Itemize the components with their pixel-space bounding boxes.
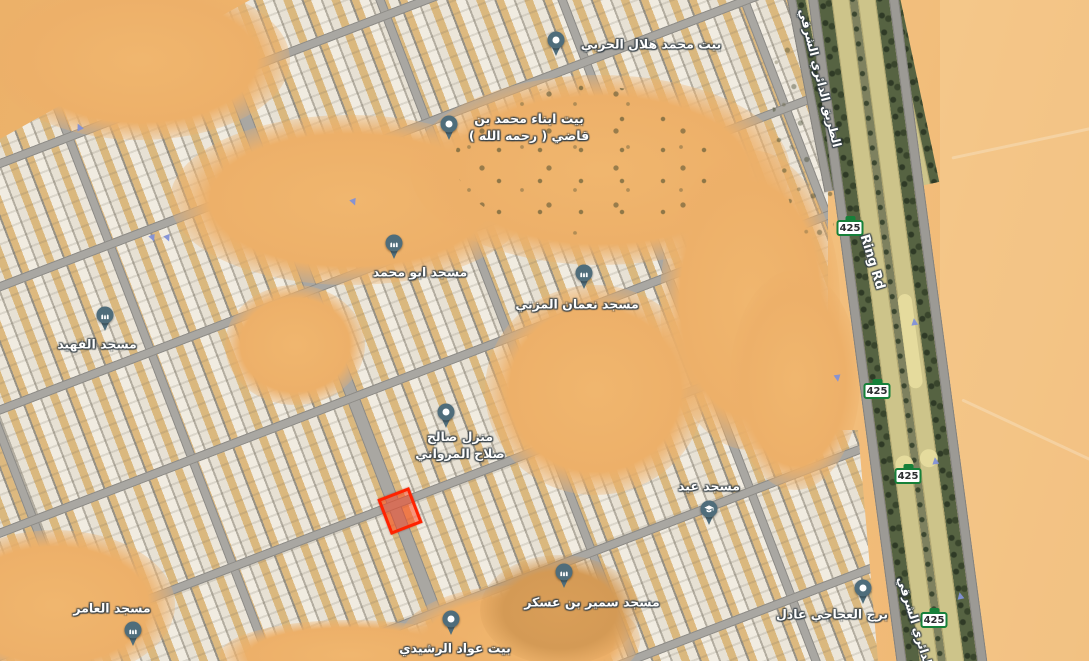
pin-label-mosque-eid[interactable]: مسجد عيد [678, 479, 740, 496]
traffic-direction-arrow: ▲ [956, 591, 965, 601]
traffic-direction-arrow: ▲ [931, 457, 939, 467]
pin-mosque-alamer[interactable] [125, 622, 142, 639]
pin-house-awad-alrashidi[interactable] [443, 611, 460, 628]
pin-label-line: صلاح المرواني [415, 446, 504, 463]
pin-mosque-alfuhaid[interactable] [97, 307, 114, 324]
satellite-map[interactable]: ▲▲▲▲▲▲▲▲425425425425الطريق الدائري الشرق… [0, 0, 1089, 661]
pin-label-line: برج العجاجي عادل [776, 607, 888, 624]
dot-icon [446, 121, 453, 128]
pin-mosque-eid[interactable] [701, 501, 718, 518]
route-425-shield: 425 [837, 220, 864, 236]
dot-icon [448, 616, 455, 623]
pin-label-line: بيت عواد الرشيدي [399, 641, 511, 658]
pin-mosque-samir-bin-askar[interactable] [556, 564, 573, 581]
pin-label-house-awad-alrashidi[interactable]: بيت عواد الرشيدي [399, 641, 511, 658]
pin-label-house-mohammed-hilal-alharbi[interactable]: بيت محمد هلال الحربي [581, 37, 722, 54]
route-425-shield: 425 [864, 383, 891, 399]
pin-label-line: مسجد سمير بن عسكر [524, 595, 660, 612]
dot-icon [443, 409, 450, 416]
pin-label-line: قاضي ( رحمه الله ) [469, 128, 589, 145]
pin-label-tower-alajaji-adel[interactable]: برج العجاجي عادل [776, 607, 888, 624]
pin-house-saleh-salah-almarwani[interactable] [438, 404, 455, 421]
pin-label-house-abnaa-mohammed-bin-qadhi[interactable]: بيت ابناء محمد بنقاضي ( رحمه الله ) [469, 111, 589, 145]
pin-label-line: بيت ابناء محمد بن [469, 111, 589, 128]
pin-house-abnaa-mohammed-bin-qadhi[interactable] [441, 116, 458, 133]
route-number: 425 [867, 386, 888, 397]
pin-tower-alajaji-adel[interactable] [855, 580, 872, 597]
terrain-patch [455, 85, 715, 235]
mosque-icon [100, 310, 111, 321]
pin-label-mosque-samir-bin-askar[interactable]: مسجد سمير بن عسكر [524, 595, 660, 612]
pin-label-line: منزل صالح [415, 429, 504, 446]
dot-icon [860, 585, 867, 592]
route-number: 425 [840, 223, 861, 234]
route-425-shield: 425 [921, 612, 948, 628]
pin-label-house-saleh-salah-almarwani[interactable]: منزل صالحصلاح المرواني [415, 429, 504, 463]
school-icon [704, 504, 715, 515]
pin-label-line: مسجد عيد [678, 479, 740, 496]
terrain-patch [225, 285, 365, 405]
pin-label-mosque-alfuhaid[interactable]: مسجد الفهيد [57, 337, 137, 354]
dot-icon [553, 37, 560, 44]
route-number: 425 [924, 615, 945, 626]
pin-label-line: بيت محمد هلال الحربي [581, 37, 722, 54]
pin-house-mohammed-hilal-alharbi[interactable] [548, 32, 565, 49]
pin-label-line: مسجد العامر [73, 601, 150, 618]
route-number: 425 [898, 471, 919, 482]
pin-label-mosque-numan-almuzani[interactable]: مسجد نعمان المزني [515, 297, 638, 314]
route-425-shield: 425 [895, 468, 922, 484]
traffic-direction-arrow: ▲ [833, 373, 841, 383]
mosque-icon [559, 567, 570, 578]
pin-label-line: مسجد نعمان المزني [515, 297, 638, 314]
pin-label-mosque-abu-mohammed[interactable]: مسجد ابو محمد [373, 265, 468, 282]
pin-mosque-numan-almuzani[interactable] [576, 265, 593, 282]
mosque-icon [128, 625, 139, 636]
pin-label-line: مسجد ابو محمد [373, 265, 468, 282]
pin-label-line: مسجد الفهيد [57, 337, 137, 354]
traffic-direction-arrow: ▲ [910, 318, 918, 328]
pin-label-mosque-alamer[interactable]: مسجد العامر [73, 601, 150, 618]
mosque-icon [389, 238, 400, 249]
mosque-icon [579, 268, 590, 279]
pin-mosque-abu-mohammed[interactable] [386, 235, 403, 252]
